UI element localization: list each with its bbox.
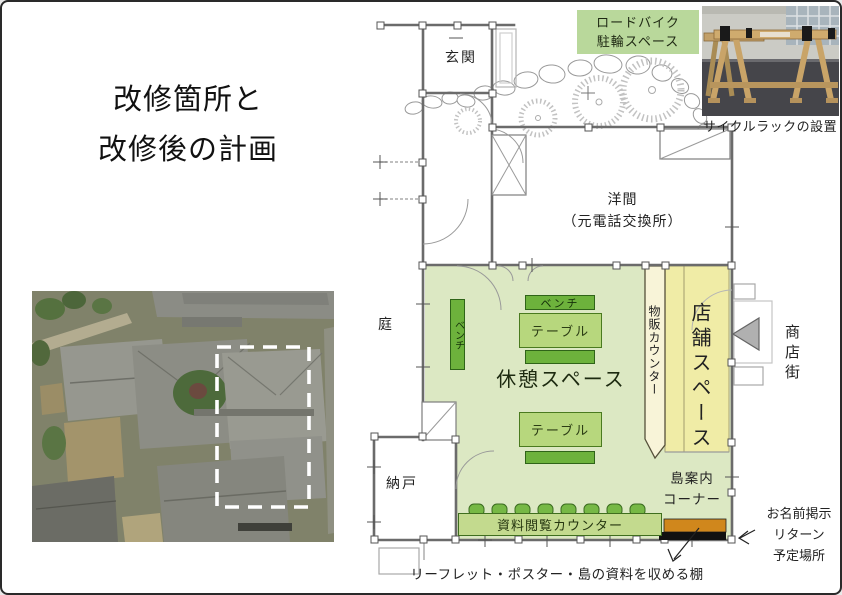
room-label-store-space: 店舗スペース	[681, 289, 717, 464]
bench-middle	[525, 350, 595, 364]
western-room-line2: （元電話交換所）	[535, 211, 710, 233]
island-corner-line1: 島案内	[650, 469, 734, 490]
bench-lower	[525, 451, 595, 464]
room-label-storage: 納戸	[382, 473, 422, 493]
goods-counter-label: 物販カウンター	[644, 284, 664, 416]
room-label-rest-space: 休憩スペース	[480, 366, 642, 395]
cycle-rack-photo	[702, 6, 839, 116]
island-corner-label: 島案内 コーナー	[650, 469, 734, 511]
slide-title: 改修箇所と 改修後の計画	[48, 76, 328, 176]
slide-title-line1: 改修箇所と	[48, 76, 328, 126]
bike-parking-label-line1: ロードバイク	[596, 13, 680, 33]
room-label-entrance: 玄関	[430, 47, 492, 67]
label-shopping-street: 商店街	[777, 312, 805, 396]
street-entry-arrow	[733, 318, 759, 350]
name-return-line1: お名前掲示	[755, 503, 842, 524]
reading-counter: 資料閲覧カウンター	[458, 513, 662, 536]
slide-title-line2: 改修後の計画	[48, 126, 328, 176]
bike-parking-label-line2: 駐輪スペース	[597, 32, 679, 52]
table-upper: テーブル	[519, 313, 602, 348]
room-label-garden: 庭	[370, 314, 400, 334]
room-label-western-room: 洋間 （元電話交換所）	[535, 189, 710, 232]
bench-left: ベンチ	[450, 299, 465, 370]
slide: 改修箇所と 改修後の計画 ロードバイク 駐輪スペース サイクルラックの設置 玄関…	[0, 0, 842, 595]
island-corner-line2: コーナー	[650, 490, 734, 511]
table-lower: テーブル	[519, 412, 602, 447]
bike-parking-label-box: ロードバイク 駐輪スペース	[577, 10, 699, 54]
shelf-caption: リーフレット・ポスター・島の資料を収める棚	[387, 565, 727, 585]
name-return-annotation: お名前掲示 リターン 予定場所	[755, 503, 842, 566]
cycle-rack-caption: サイクルラックの設置	[699, 118, 841, 137]
name-return-line2: リターン	[755, 524, 842, 545]
aerial-photo	[30, 291, 334, 542]
western-room-line1: 洋間	[535, 189, 710, 211]
name-return-line3: 予定場所	[755, 545, 842, 566]
bench-top: ベンチ	[525, 295, 595, 310]
